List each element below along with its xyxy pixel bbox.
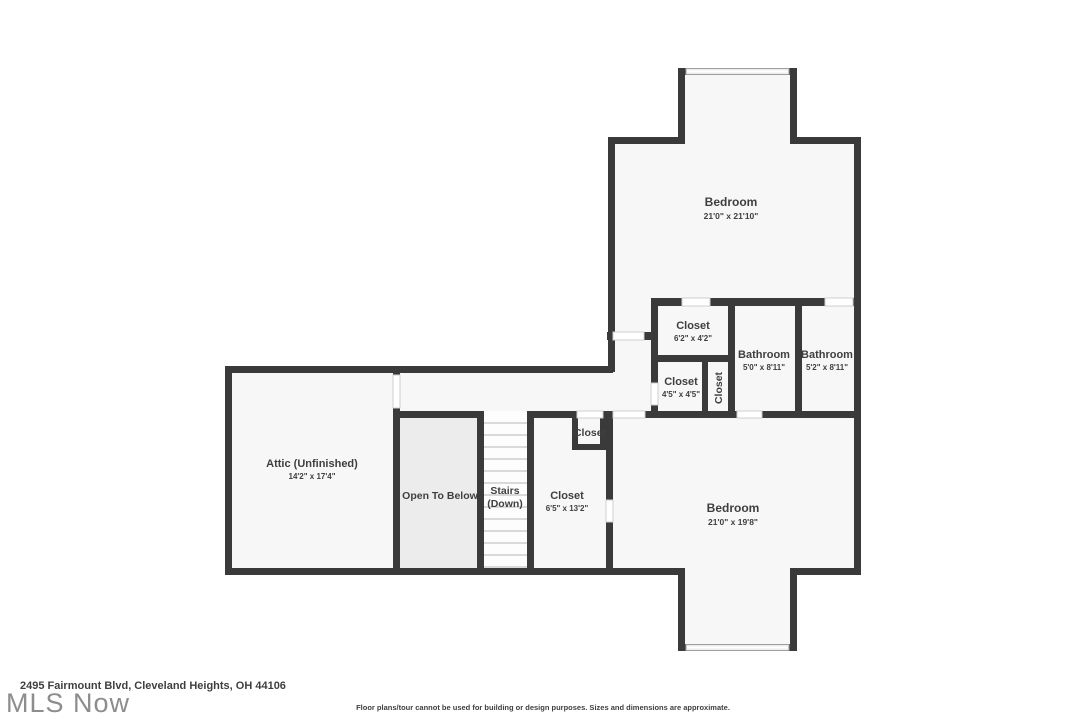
room-name: Bedroom bbox=[705, 195, 758, 209]
room-name: Bathroom bbox=[738, 349, 790, 361]
room-label-closet-small: Closet bbox=[574, 427, 607, 439]
room-name: Open To Below bbox=[402, 490, 478, 502]
room-name: Closet bbox=[713, 371, 725, 404]
window-icon bbox=[686, 69, 789, 75]
door-opening bbox=[393, 375, 400, 408]
room-dims: 5'0" x 8'11" bbox=[743, 363, 785, 372]
door-opening bbox=[682, 298, 710, 306]
room-dims: 6'2" x 4'2" bbox=[674, 334, 712, 343]
room-label-bathroom-right: Bathroom 5'2" x 8'11" bbox=[801, 349, 853, 372]
room-label-closet-vertical: Closet bbox=[713, 371, 725, 404]
door-opening bbox=[613, 332, 644, 340]
room-dims: 21'0" x 21'10" bbox=[704, 211, 759, 221]
room-dims: 21'0" x 19'8" bbox=[708, 517, 758, 527]
door-opening bbox=[613, 411, 645, 418]
room-name: Closet bbox=[550, 490, 584, 502]
room-label-closet-mid: Closet 4'5" x 4'5" bbox=[662, 376, 700, 399]
floor-plan: Bedroom 21'0" x 21'10" Closet 6'2" x 4'2… bbox=[0, 0, 1086, 724]
room-name: Closet bbox=[664, 376, 698, 388]
room-label-open-to-below: Open To Below bbox=[402, 490, 478, 502]
room-dims: 4'5" x 4'5" bbox=[662, 390, 700, 399]
room-label-closet-top: Closet 6'2" x 4'2" bbox=[674, 320, 712, 343]
door-opening bbox=[577, 411, 603, 418]
door-opening bbox=[737, 411, 762, 418]
door-opening bbox=[606, 500, 613, 522]
room-label-stairs: Stairs (Down) bbox=[487, 485, 523, 510]
floor-plan-canvas: Bedroom 21'0" x 21'10" Closet 6'2" x 4'2… bbox=[0, 0, 1086, 724]
door-opening bbox=[825, 298, 853, 306]
window-icon bbox=[686, 645, 789, 651]
room-dims: 14'2" x 17'4" bbox=[289, 472, 336, 481]
room-label-bedroom-upper: Bedroom 21'0" x 21'10" bbox=[704, 195, 759, 221]
room-name: Attic (Unfinished) bbox=[266, 458, 358, 470]
room-label-bedroom-lower: Bedroom 21'0" x 19'8" bbox=[707, 501, 760, 527]
room-label-closet-long: Closet 6'5" x 13'2" bbox=[546, 490, 589, 513]
room-name: Stairs bbox=[490, 485, 519, 497]
room-name: Closet bbox=[676, 320, 710, 332]
room-name: Bedroom bbox=[707, 501, 760, 515]
room-dims: 6'5" x 13'2" bbox=[546, 504, 589, 513]
room-dims: 5'2" x 8'11" bbox=[806, 363, 848, 372]
room-label-bathroom-left: Bathroom 5'0" x 8'11" bbox=[738, 349, 790, 372]
room-name: Bathroom bbox=[801, 349, 853, 361]
room-sub: (Down) bbox=[487, 498, 523, 510]
door-opening bbox=[651, 383, 658, 405]
disclaimer-text: Floor plans/tour cannot be used for buil… bbox=[0, 703, 1086, 712]
room-name: Closet bbox=[574, 427, 607, 439]
